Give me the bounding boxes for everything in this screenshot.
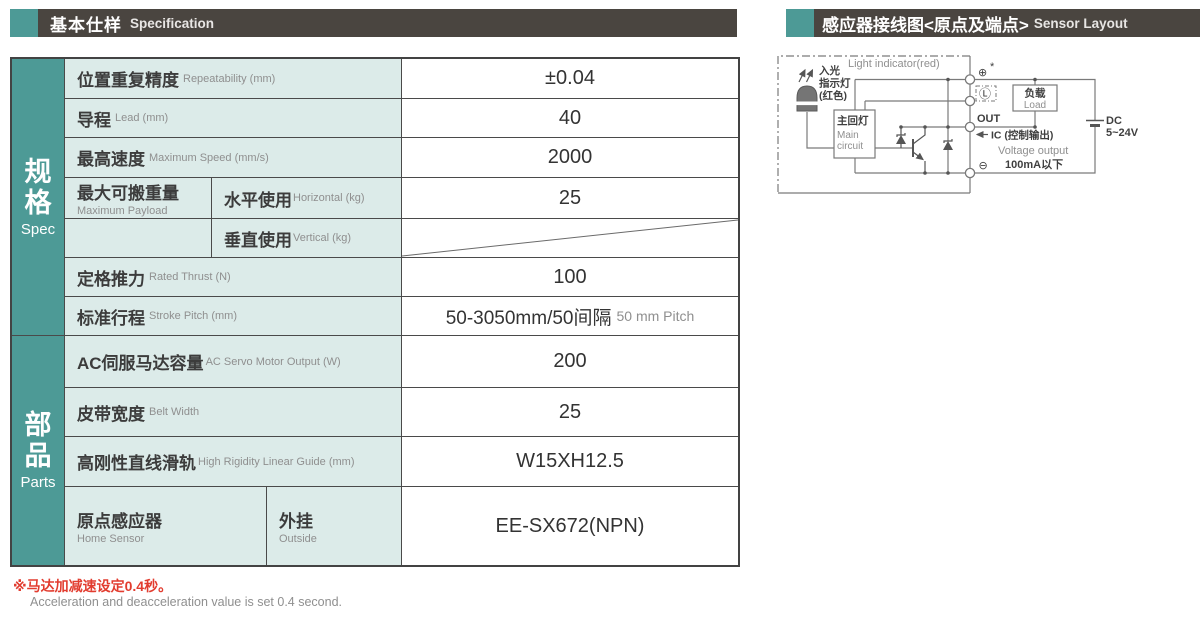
terminal-minus	[965, 168, 974, 177]
value-servo-output: 200	[402, 336, 738, 387]
plus-symbol: ⊕	[978, 67, 987, 79]
label-en: Lead (mm)	[115, 112, 168, 124]
light-ray-arrows-icon	[799, 70, 813, 82]
label-zh: AC伺服马达容量	[77, 349, 204, 374]
specification-section-header: 基本仕样 Specification	[10, 9, 737, 37]
teal-accent-square	[786, 9, 814, 37]
value-en: 50 mm Pitch	[616, 308, 694, 324]
group-parts-en: Parts	[20, 474, 55, 491]
current-limit-label: 100mA以下	[1005, 158, 1063, 171]
out-label: OUT	[977, 113, 1001, 125]
value-horizontal-payload: 25	[402, 178, 738, 218]
label-zh: 皮带宽度	[77, 400, 145, 425]
group-column: 规 格 Spec 部 品 Parts	[12, 59, 65, 565]
dc-voltage-label: 5~24V	[1106, 127, 1139, 139]
label-en: Belt Width	[149, 406, 199, 418]
row-label-linear-guide: 高刚性直线滑轨 High Rigidity Linear Guide (mm)	[65, 437, 402, 486]
label-en: AC Servo Motor Output (W)	[206, 356, 341, 368]
table-row: AC伺服马达容量 AC Servo Motor Output (W) 200	[65, 336, 738, 388]
dc-label: DC	[1106, 115, 1122, 127]
value-repeatability: ±0.04	[402, 59, 738, 98]
label-zh: 水平使用	[224, 186, 292, 211]
value-zh: 50-3050mm/50间隔	[446, 303, 612, 330]
row-label-outside: 外挂 Outside	[267, 487, 402, 565]
value-rated-thrust: 100	[402, 258, 738, 296]
value-lead: 40	[402, 99, 738, 137]
value-linear-guide: W15XH12.5	[402, 437, 738, 486]
row-label-repeatability: 位置重复精度 Repeatability (mm)	[65, 59, 402, 98]
ic-label: IC (控制输出)	[991, 129, 1053, 142]
label-zh: 垂直使用	[224, 226, 292, 251]
footnote-zh: ※马达加减速设定0.4秒。	[13, 576, 172, 596]
table-row: 垂直使用 Vertical (kg)	[65, 219, 738, 258]
table-row: 定格推力 Rated Thrust (N) 100	[65, 258, 738, 297]
terminal-plus	[965, 75, 974, 84]
label-en: Outside	[279, 533, 317, 545]
light-in-label-3: (红色)	[819, 89, 847, 102]
group-spec-en: Spec	[21, 221, 55, 238]
light-indicator-label-en: Light indicator(red)	[848, 58, 940, 70]
asterisk: *	[990, 61, 995, 73]
footnote-en: Acceleration and deacceleration value is…	[30, 595, 342, 609]
terminal-light-select	[965, 96, 974, 105]
minus-symbol: ⊖	[979, 160, 988, 172]
row-label-rated-thrust: 定格推力 Rated Thrust (N)	[65, 258, 402, 296]
specification-header-bar: 基本仕样 Specification	[38, 9, 737, 37]
group-parts-char1: 部	[25, 410, 52, 441]
value-max-speed: 2000	[402, 138, 738, 177]
value-stroke-pitch: 50-3050mm/50间隔 50 mm Pitch	[402, 297, 738, 335]
row-label-lead: 导程 Lead (mm)	[65, 99, 402, 137]
row-label-stroke-pitch: 标准行程 Stroke Pitch (mm)	[65, 297, 402, 335]
led-indicator-icon	[796, 86, 817, 111]
group-parts-char2: 品	[25, 441, 52, 472]
table-rows: 位置重复精度 Repeatability (mm) ±0.04 导程 Lead …	[65, 59, 738, 565]
teal-accent-square	[10, 9, 38, 37]
label-zh: 高刚性直线滑轨	[77, 449, 196, 474]
value-home-sensor: EE-SX672(NPN)	[402, 487, 738, 565]
row-label-vertical: 垂直使用 Vertical (kg)	[212, 219, 402, 257]
label-en: Rated Thrust (N)	[149, 271, 231, 283]
zener-diode-icon	[943, 139, 953, 150]
table-row: 标准行程 Stroke Pitch (mm) 50-3050mm/50间隔 50…	[65, 297, 738, 336]
label-en: Vertical (kg)	[293, 232, 351, 244]
sensor-layout-title-zh: 感应器接线图<原点及端点>	[822, 11, 1029, 36]
row-label-belt-width: 皮带宽度 Belt Width	[65, 388, 402, 436]
row-label-max-payload-cont	[65, 219, 212, 257]
specification-table: 规 格 Spec 部 品 Parts 位置重复精度 Repeatability …	[10, 57, 740, 567]
voltage-output-label: Voltage output	[998, 145, 1068, 157]
load-label-en: Load	[1024, 100, 1046, 111]
label-zh: 标准行程	[77, 304, 145, 329]
zener-diode-icon	[896, 127, 906, 148]
table-row: 导程 Lead (mm) 40	[65, 99, 738, 138]
table-row: 高刚性直线滑轨 High Rigidity Linear Guide (mm) …	[65, 437, 738, 487]
label-zh: 位置重复精度	[77, 66, 179, 91]
sensor-layout-header-bar: 感应器接线图<原点及端点> Sensor Layout	[814, 9, 1200, 37]
light-select-symbol: Ⓛ	[979, 87, 991, 101]
label-en: Stroke Pitch (mm)	[149, 310, 237, 322]
diagonal-na-line	[402, 219, 738, 257]
sensor-layout-section-header: 感应器接线图<原点及端点> Sensor Layout	[786, 9, 1200, 37]
row-label-servo-output: AC伺服马达容量 AC Servo Motor Output (W)	[65, 336, 402, 387]
terminal-out	[965, 122, 974, 131]
value-vertical-payload	[402, 219, 738, 257]
row-label-max-payload: 最大可搬重量 Maximum Payload	[65, 178, 212, 218]
group-spec-char2: 格	[25, 188, 52, 219]
group-header-parts: 部 品 Parts	[12, 336, 64, 565]
table-row: 原点感应器 Home Sensor 外挂 Outside EE-SX672(NP…	[65, 487, 738, 565]
sensor-layout-title-en: Sensor Layout	[1034, 16, 1128, 31]
label-zh: 最高速度	[77, 145, 145, 170]
table-row: 最高速度 Maximum Speed (mm/s) 2000	[65, 138, 738, 178]
transistor-icon	[913, 127, 925, 173]
label-en: Maximum Speed (mm/s)	[149, 152, 269, 164]
group-spec-char1: 规	[25, 157, 52, 188]
load-label-zh: 负载	[1025, 87, 1047, 100]
table-row: 最大可搬重量 Maximum Payload 水平使用 Horizontal (…	[65, 178, 738, 219]
label-en: Repeatability (mm)	[183, 73, 275, 85]
row-label-horizontal: 水平使用 Horizontal (kg)	[212, 178, 402, 218]
group-header-spec: 规 格 Spec	[12, 59, 64, 336]
light-in-label-2: 指示灯	[819, 77, 851, 90]
specification-title-en: Specification	[130, 16, 214, 31]
label-en: Horizontal (kg)	[293, 192, 365, 204]
label-zh: 最大可搬重量	[77, 179, 179, 204]
main-circuit-label-en2: circuit	[837, 141, 863, 152]
value-belt-width: 25	[402, 388, 738, 436]
row-label-max-speed: 最高速度 Maximum Speed (mm/s)	[65, 138, 402, 177]
sensor-wiring-diagram: 主回灯 Main circuit 负载 Load DC 5~24V	[775, 48, 1200, 238]
label-en: Maximum Payload	[77, 205, 167, 217]
battery-icon	[1086, 121, 1104, 126]
light-in-label-1: 入光	[819, 64, 840, 77]
specification-title-zh: 基本仕样	[50, 11, 122, 36]
label-zh: 定格推力	[77, 265, 145, 290]
label-zh: 导程	[77, 106, 111, 131]
row-label-home-sensor: 原点感应器 Home Sensor	[65, 487, 267, 565]
table-row: 皮带宽度 Belt Width 25	[65, 388, 738, 437]
main-circuit-label-zh: 主回灯	[837, 114, 869, 127]
label-en: High Rigidity Linear Guide (mm)	[198, 456, 355, 468]
label-en: Home Sensor	[77, 533, 144, 545]
table-row: 位置重复精度 Repeatability (mm) ±0.04	[65, 59, 738, 99]
label-zh: 原点感应器	[77, 507, 162, 532]
label-zh: 外挂	[279, 507, 313, 532]
main-circuit-label-en1: Main	[837, 130, 859, 141]
